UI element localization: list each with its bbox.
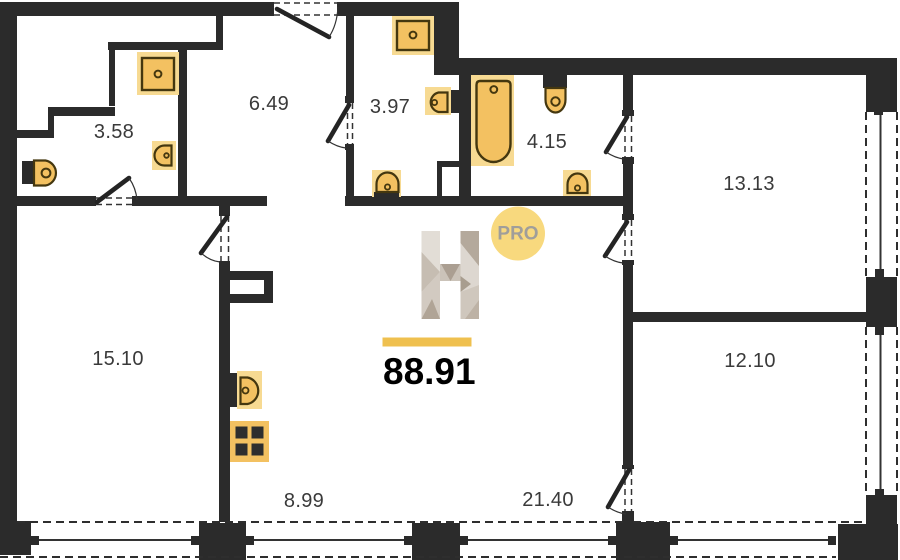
svg-text:12.10: 12.10 xyxy=(724,350,776,372)
svg-text:6.49: 6.49 xyxy=(249,93,289,115)
svg-text:15.10: 15.10 xyxy=(92,348,144,370)
svg-text:21.40: 21.40 xyxy=(522,489,574,511)
svg-text:3.97: 3.97 xyxy=(370,96,410,118)
svg-text:PRO: PRO xyxy=(497,224,538,245)
svg-text:3.58: 3.58 xyxy=(94,121,134,143)
svg-text:8.99: 8.99 xyxy=(284,490,324,512)
svg-text:88.91: 88.91 xyxy=(383,351,476,392)
svg-text:4.15: 4.15 xyxy=(527,131,567,153)
svg-text:13.13: 13.13 xyxy=(723,173,775,195)
